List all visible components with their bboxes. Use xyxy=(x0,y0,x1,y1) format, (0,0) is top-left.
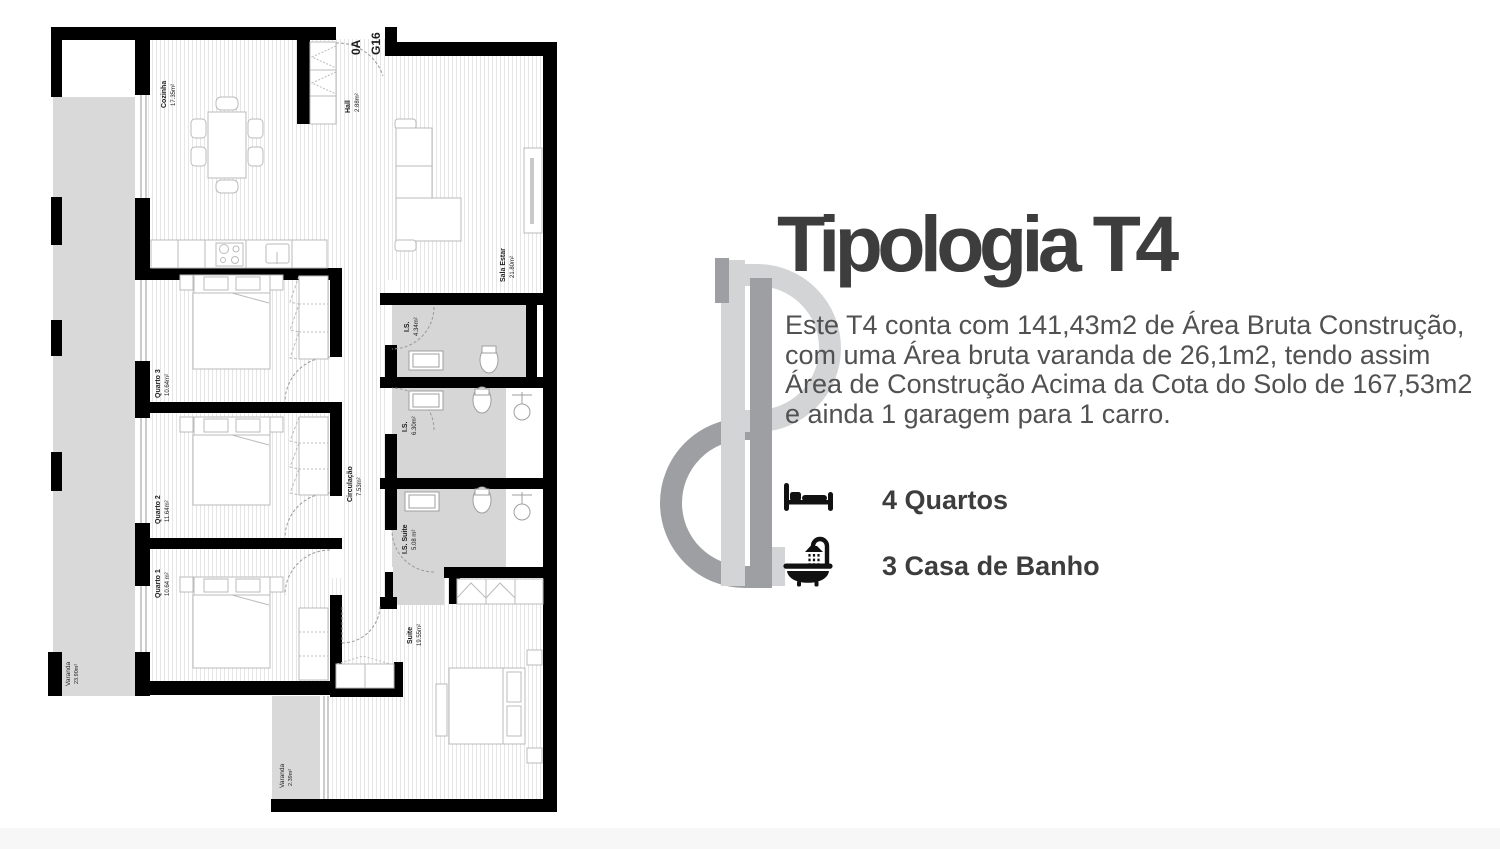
svg-text:23.90m²: 23.90m² xyxy=(74,664,80,684)
svg-text:19.55m²: 19.55m² xyxy=(417,624,423,646)
svg-text:Suite: Suite xyxy=(407,627,414,644)
svg-text:Varanda: Varanda xyxy=(65,662,72,686)
svg-text:2.39m²: 2.39m² xyxy=(288,769,294,786)
svg-text:Varanda: Varanda xyxy=(279,764,286,788)
